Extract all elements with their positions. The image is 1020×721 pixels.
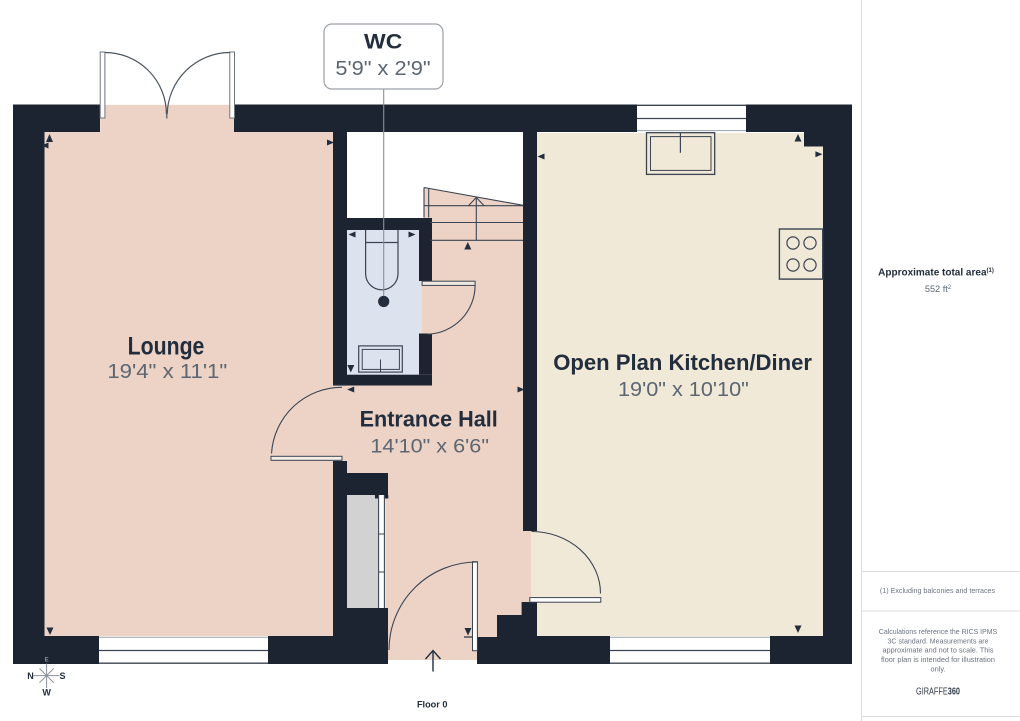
svg-text:floor plan is intended for ill: floor plan is intended for illustration [881, 655, 995, 664]
svg-text:(1) Excluding balconies and te: (1) Excluding balconies and terraces [880, 588, 996, 595]
svg-text:W: W [42, 688, 51, 698]
svg-text:N: N [27, 671, 34, 681]
svg-text:Approximate total area(1): Approximate total area(1) [878, 267, 994, 278]
svg-text:552 ft2: 552 ft2 [925, 284, 952, 294]
svg-text:Calculations reference the RIC: Calculations reference the RICS IPMS [879, 627, 997, 636]
svg-text:Floor 0: Floor 0 [417, 700, 448, 710]
svg-text:Entrance Hall: Entrance Hall [360, 406, 498, 431]
svg-text:3C standard. Measurements are: 3C standard. Measurements are [888, 636, 989, 645]
svg-text:Lounge: Lounge [128, 332, 205, 360]
svg-text:WC: WC [364, 30, 402, 54]
svg-text:5'9" x 2'9": 5'9" x 2'9" [335, 58, 430, 80]
svg-text:only.: only. [930, 665, 945, 674]
svg-text:Open Plan Kitchen/Diner: Open Plan Kitchen/Diner [553, 350, 812, 375]
svg-text:14'10" x 6'6": 14'10" x 6'6" [370, 437, 489, 458]
svg-text:E: E [45, 658, 49, 664]
svg-text:19'0" x 10'10": 19'0" x 10'10" [618, 379, 749, 401]
svg-text:19'4" x 11'1": 19'4" x 11'1" [107, 361, 227, 383]
svg-text:GIRAFFE360: GIRAFFE360 [916, 687, 960, 698]
svg-text:approximate and not to scale.: approximate and not to scale. This [883, 646, 994, 655]
svg-text:S: S [59, 671, 65, 681]
